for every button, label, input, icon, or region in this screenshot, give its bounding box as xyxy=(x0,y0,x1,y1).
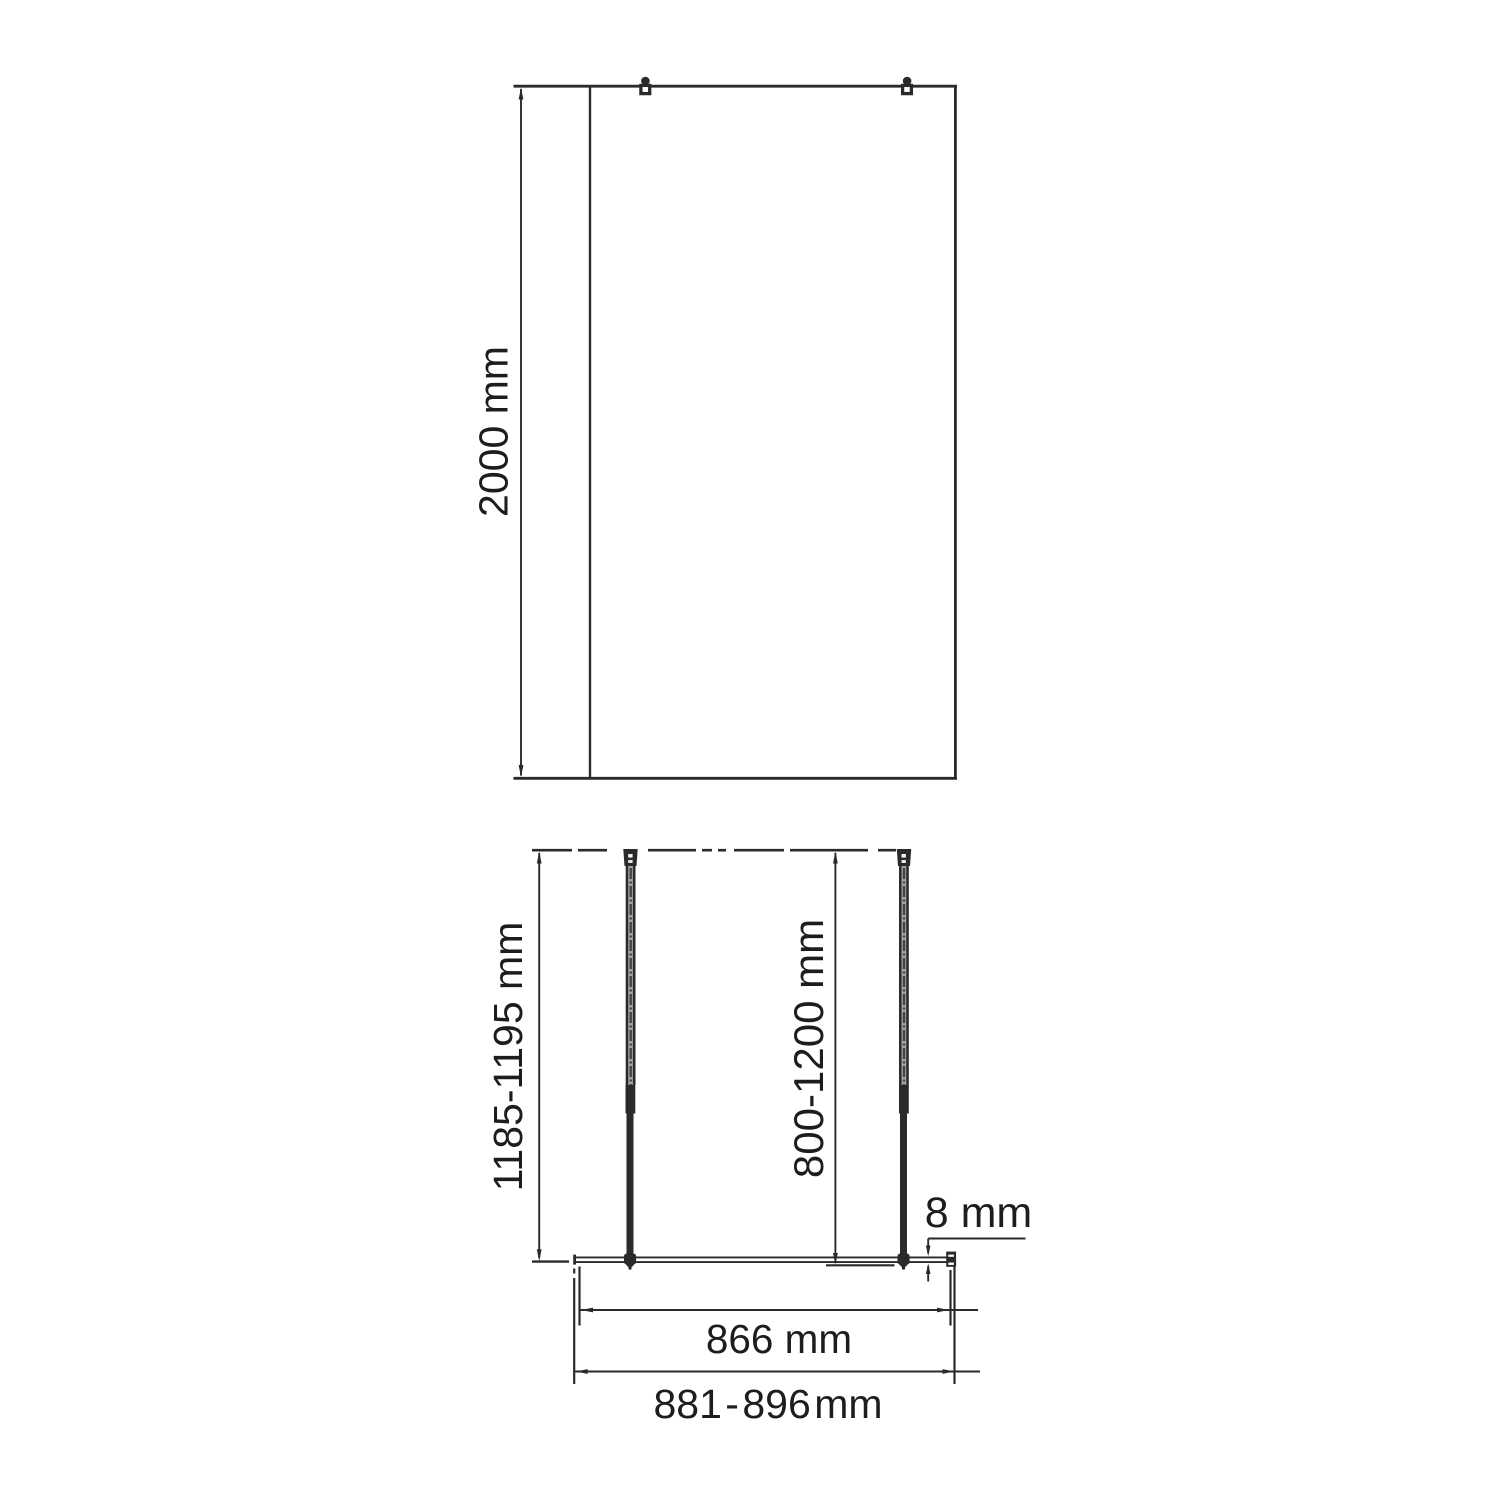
svg-text:866 mm: 866 mm xyxy=(706,1316,852,1362)
svg-text:800-1200 mm: 800-1200 mm xyxy=(785,919,832,1178)
svg-text:8 mm: 8 mm xyxy=(925,1189,1033,1237)
svg-text:2000 mm: 2000 mm xyxy=(471,346,517,517)
svg-text:1185-1195 mm: 1185-1195 mm xyxy=(485,922,531,1192)
svg-text:881 - 896 mm: 881 - 896 mm xyxy=(653,1381,882,1427)
